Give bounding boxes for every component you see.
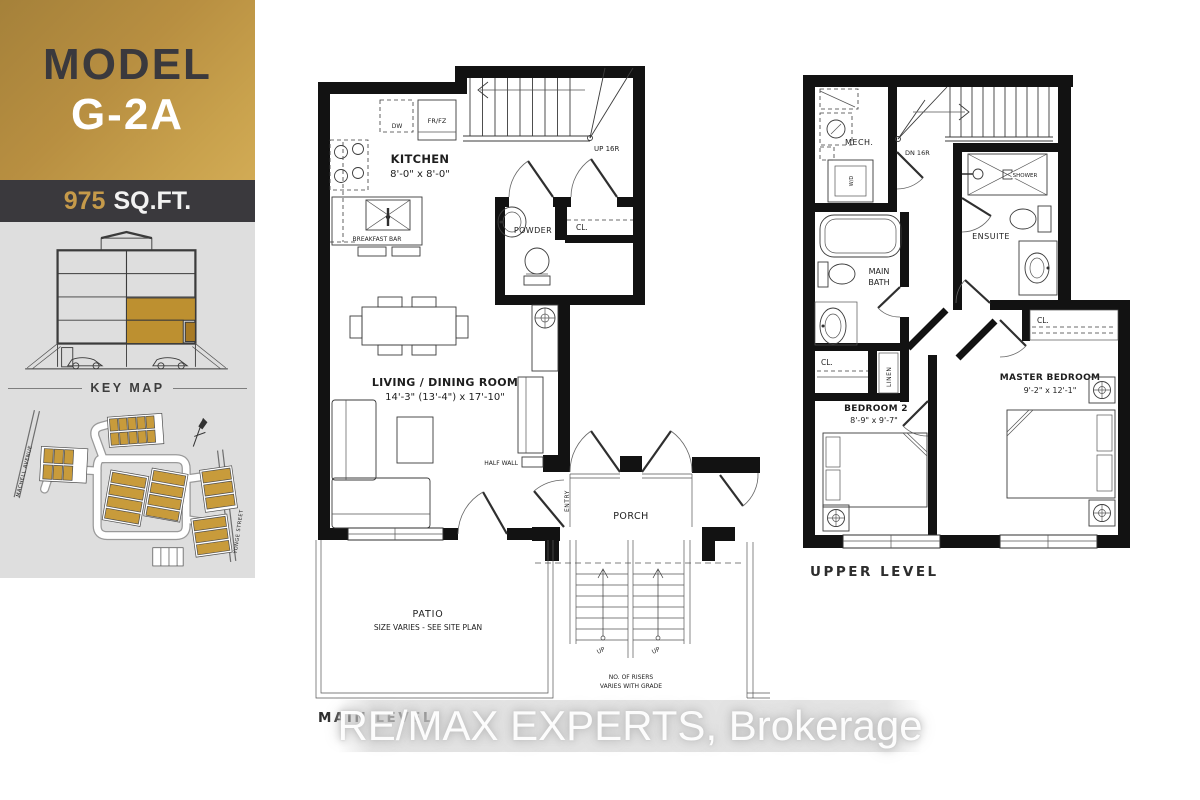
living-dims: 14'-3" (13'-4") x 17'-10" (385, 392, 505, 403)
stove (330, 140, 368, 190)
main-level-walls (318, 66, 760, 561)
kitchen-name: KITCHEN (391, 152, 450, 166)
stairs-down-label: DN 16R (905, 149, 930, 157)
bathtub (820, 215, 901, 257)
main-level-plan: UP 16R FR/FZ DW BREAKFAST BAR KITCHEN 8'… (300, 50, 770, 730)
hall-doors (509, 159, 617, 197)
hall-closet (817, 371, 868, 377)
ceiling-fixture-icon (1089, 500, 1115, 526)
coffee-table (397, 417, 433, 463)
powder-toilet (524, 248, 550, 285)
master-window (1000, 535, 1097, 548)
duct-chase (532, 305, 558, 371)
shower-door (962, 198, 991, 232)
interior-stairs-down (896, 87, 1054, 142)
stool (392, 247, 420, 256)
master-bed (1007, 410, 1115, 498)
kitchen-dims: 8'-0" x 8'-0" (390, 169, 450, 180)
brokerage-watermark: RE/MAX EXPERTS, Brokerage (338, 700, 922, 752)
washer-dryer-label: W/D (849, 176, 855, 187)
half-wall-cabinet (518, 377, 543, 467)
living-window (348, 528, 443, 540)
patio-door (458, 492, 507, 534)
main-bath-label-1: MAIN (869, 267, 890, 276)
bedroom2-window (843, 535, 940, 548)
stool (358, 247, 386, 256)
ensuite-toilet (1010, 206, 1051, 232)
hall-closet-label: CL. (821, 358, 833, 367)
powder-room (498, 207, 550, 285)
stairs-up-label: UP 16R (594, 145, 619, 153)
bedroom2-name: BEDROOM 2 (844, 404, 908, 414)
upper-level-title: UPPER LEVEL (810, 564, 939, 580)
bedroom2-bed (823, 433, 927, 507)
half-wall-label: HALF WALL (484, 460, 518, 467)
sofa (332, 400, 430, 528)
linen-label: LINEN (886, 367, 893, 387)
patio-name: PATIO (413, 609, 444, 620)
floor-plans: UP 16R FR/FZ DW BREAKFAST BAR KITCHEN 8'… (0, 0, 1200, 800)
interior-stairs-up (463, 68, 633, 141)
main-bath-label-2: BATH (868, 278, 889, 287)
living-name: LIVING / DINING ROOM (372, 376, 518, 389)
closet-label: CL. (576, 223, 588, 232)
mech-label: MECH. (845, 138, 873, 147)
master-closet-label: CL. (1037, 316, 1049, 325)
breakfast-bar-label: BREAKFAST BAR (353, 236, 402, 243)
dishwasher-label: DW (392, 123, 403, 130)
dining-table (350, 297, 468, 355)
master-name: MASTER BEDROOM (1000, 373, 1101, 383)
ensuite-vanity (1019, 241, 1057, 295)
neighbour-patio (747, 542, 770, 698)
patio-note: SIZE VARIES - SEE SITE PLAN (374, 623, 482, 632)
up-left-label: UP (596, 646, 607, 656)
master-dims: 9'-2" x 12'-1" (1024, 386, 1077, 395)
breakfast-bar-island (332, 197, 422, 256)
ceiling-fixture-icon (823, 505, 849, 531)
up-right-label: UP (651, 646, 662, 656)
bath-door (878, 287, 900, 317)
bath-toilet (818, 262, 855, 287)
upper-level-plan: W/D MECH. DN 16R SHOWER (795, 55, 1140, 585)
risers-note-2: VARIES WITH GRADE (600, 683, 662, 690)
shower-label: SHOWER (1013, 173, 1038, 179)
fridge-label: FR/FZ (428, 117, 447, 125)
bedroom2-dims: 8'-9" x 9'-7" (850, 416, 898, 425)
stair-hall-door (897, 152, 923, 189)
entry-door (534, 480, 564, 527)
master-closet (1030, 310, 1118, 340)
risers-note-1: NO. OF RISERS (609, 674, 654, 681)
porch-label: PORCH (613, 511, 649, 522)
bath-vanity (815, 302, 857, 345)
powder-label: POWDER (514, 226, 552, 235)
ensuite-label: ENSUITE (972, 232, 1010, 241)
